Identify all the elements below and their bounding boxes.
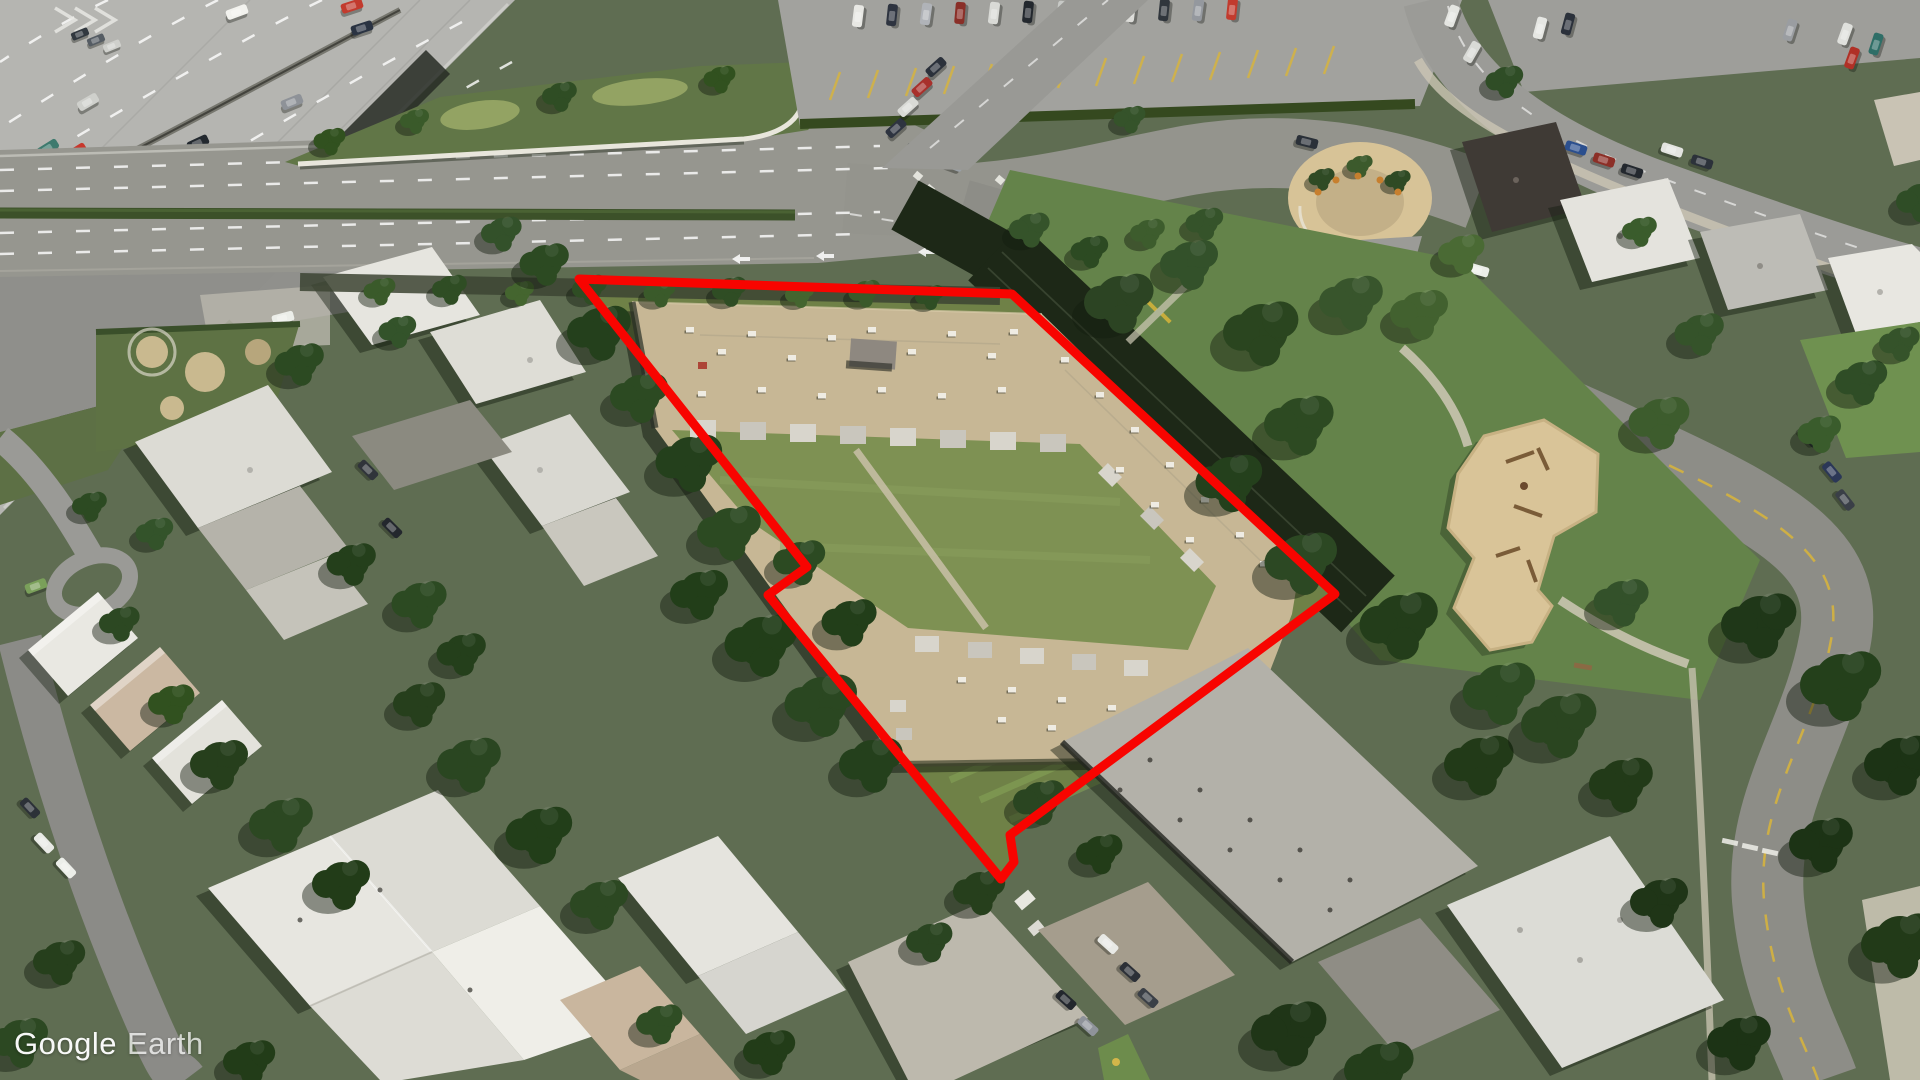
watermark-product: Earth [127,1026,204,1061]
red-roof-vent [698,362,707,369]
watermark-brand: Google [14,1026,117,1061]
median-hedge [0,213,795,215]
map-canvas[interactable]: GoogleEarth [0,0,1920,1080]
google-earth-watermark: GoogleEarth [14,1026,204,1062]
aerial-imagery [0,0,1920,1080]
